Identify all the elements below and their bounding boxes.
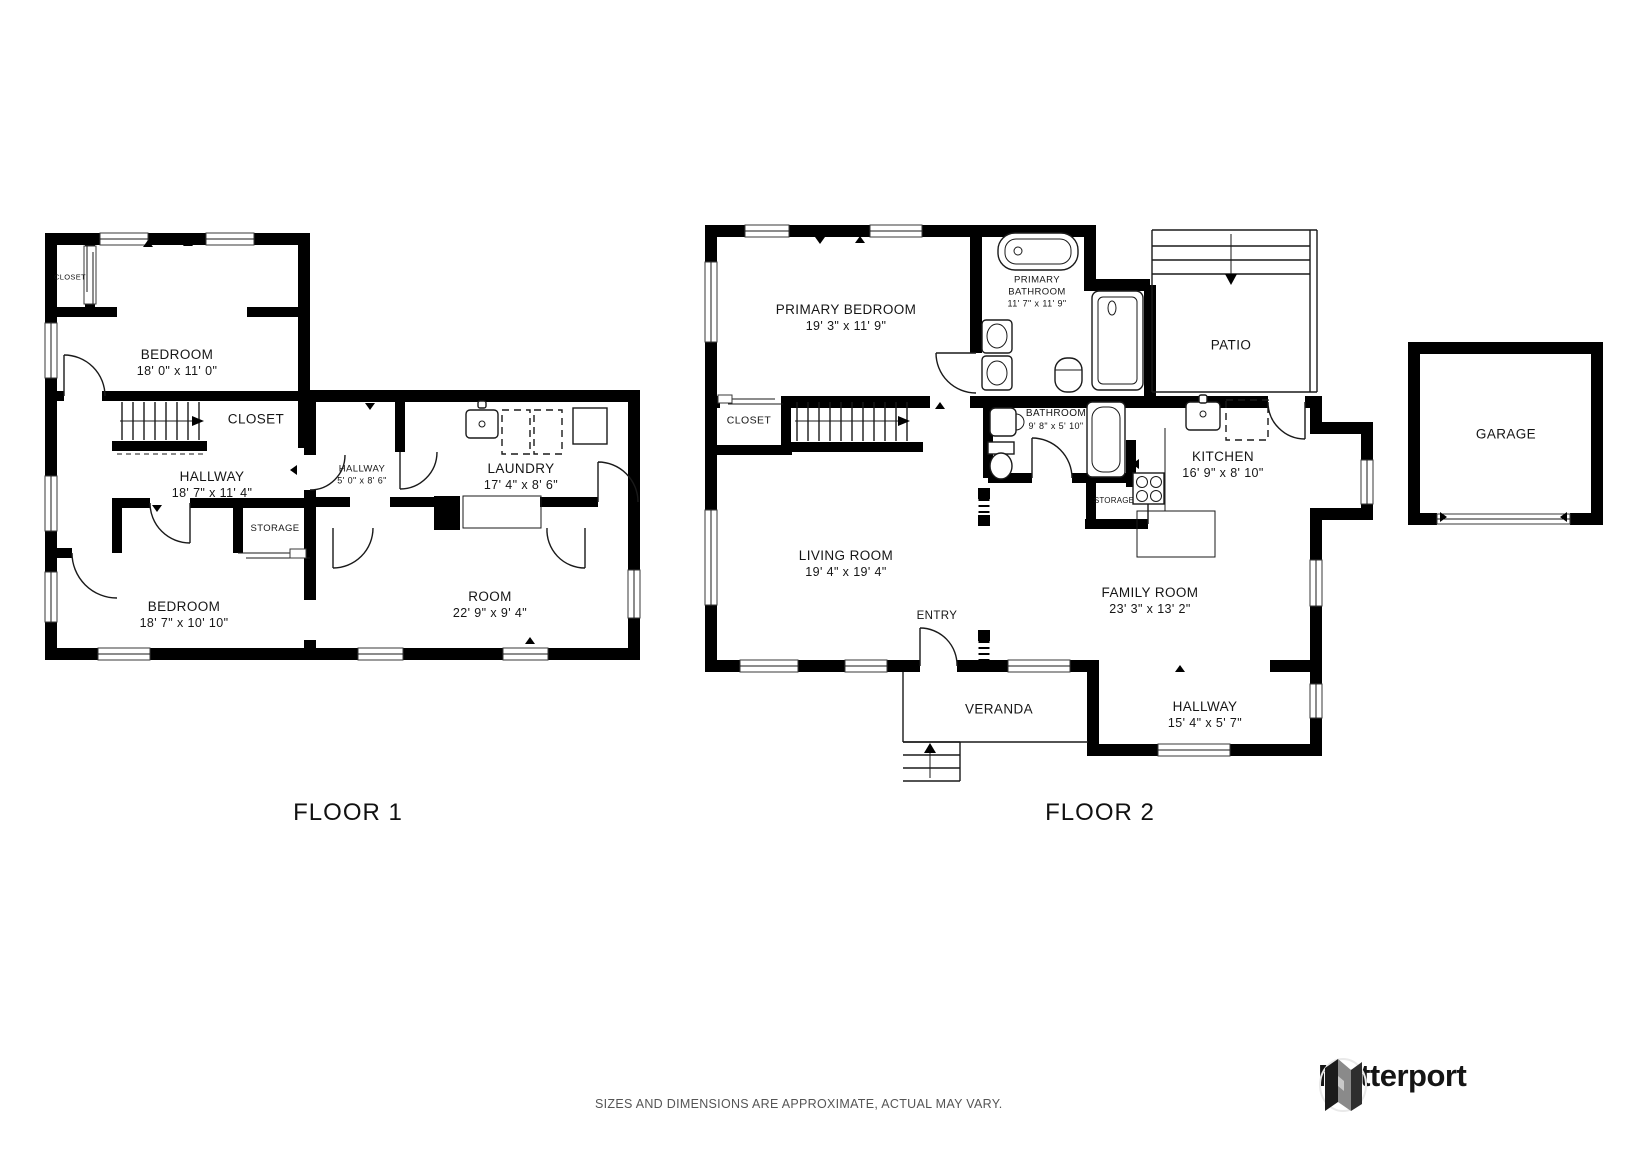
room-label-bathroom: BATHROOM 9' 8" x 5' 10" bbox=[1026, 408, 1086, 432]
room-label-primary-bedroom: PRIMARY BEDROOM 19' 3" x 11' 9" bbox=[776, 302, 917, 335]
sink-icon bbox=[990, 408, 1016, 436]
floorplan-page: CLOSET BEDROOM 18' 0" x 11' 0" CLOSET HA… bbox=[0, 0, 1647, 1164]
floor1-walls bbox=[45, 233, 640, 660]
room-label-veranda: VERANDA bbox=[965, 702, 1033, 719]
room-label-storage-f1: STORAGE bbox=[250, 523, 299, 535]
floor2-columns bbox=[978, 488, 990, 660]
room-label-entry: ENTRY bbox=[917, 609, 958, 623]
room-label-room: ROOM 22' 9" x 9' 4" bbox=[453, 589, 527, 622]
floor1-title: FLOOR 1 bbox=[293, 799, 403, 827]
room-label-family-room: FAMILY ROOM 23' 3" x 13' 2" bbox=[1102, 585, 1199, 618]
room-label-hallway-b: HALLWAY 5' 0" x 8' 6" bbox=[337, 463, 387, 486]
room-label-bedroom-b: BEDROOM 18' 7" x 10' 10" bbox=[140, 599, 229, 632]
floor2-title: FLOOR 2 bbox=[1045, 799, 1155, 827]
disclaimer-text: SIZES AND DIMENSIONS ARE APPROXIMATE, AC… bbox=[595, 1097, 1003, 1111]
room-label-kitchen: KITCHEN 16' 9" x 8' 10" bbox=[1182, 449, 1264, 482]
room-label-laundry: LAUNDRY 17' 4" x 8' 6" bbox=[484, 461, 558, 494]
toilet-icon bbox=[1055, 358, 1082, 392]
floor2-primary-bath-fixtures bbox=[982, 233, 1143, 392]
matterport-logo: Matterport bbox=[1318, 1058, 1466, 1094]
floorplan-drawing bbox=[0, 0, 1647, 1164]
room-label-living-room: LIVING ROOM 19' 4" x 19' 4" bbox=[799, 548, 893, 581]
room-label-garage: GARAGE bbox=[1476, 427, 1536, 444]
room-label-closet-a: CLOSET bbox=[54, 272, 86, 281]
sink-icon bbox=[1186, 402, 1220, 430]
room-label-storage-f2: STORAGE bbox=[1094, 496, 1134, 506]
room-label-bedroom-a: BEDROOM 18' 0" x 11' 0" bbox=[137, 347, 218, 380]
floor2-veranda bbox=[903, 672, 1088, 781]
floor2-patio bbox=[1152, 230, 1317, 392]
shower-icon bbox=[1092, 291, 1143, 390]
matterport-m-icon bbox=[1318, 1058, 1368, 1112]
room-label-hallway-f2: HALLWAY 15' 4" x 5' 7" bbox=[1168, 699, 1242, 732]
room-label-primary-bathroom: PRIMARY BATHROOM 11' 7" x 11' 9" bbox=[998, 275, 1076, 310]
room-label-closet-b: CLOSET bbox=[228, 412, 284, 429]
toilet-icon bbox=[988, 442, 1014, 454]
room-label-patio: PATIO bbox=[1211, 338, 1252, 355]
room-label-hallway-a: HALLWAY 18' 7" x 11' 4" bbox=[172, 469, 253, 502]
floor1-doors bbox=[64, 246, 638, 598]
room-label-closet-f2: CLOSET bbox=[727, 414, 771, 427]
